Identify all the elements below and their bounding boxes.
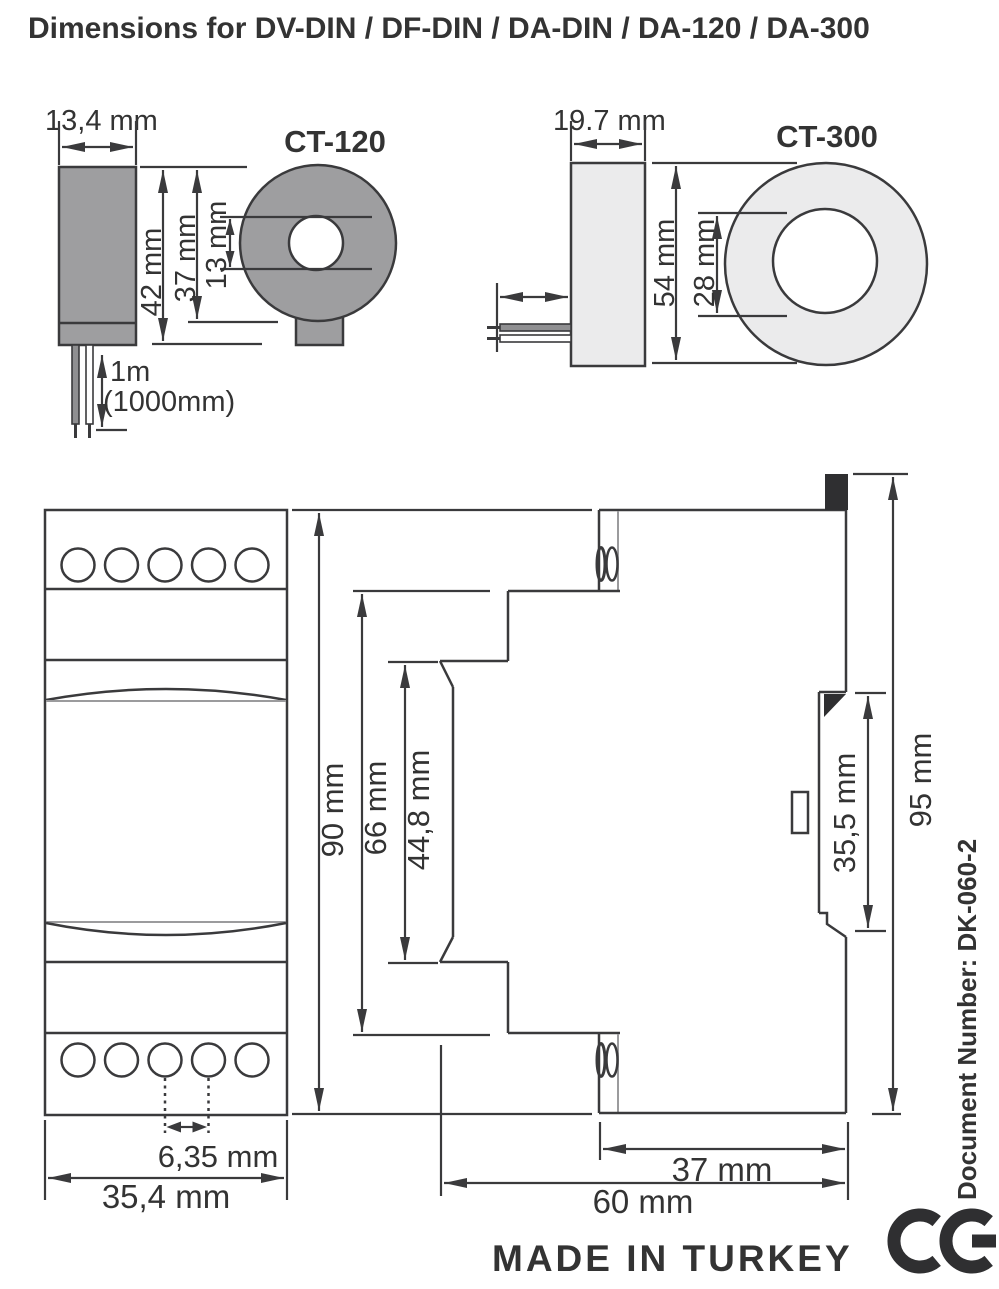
ce-letter-c	[894, 1215, 937, 1267]
rail-slot-label: 35,5 mm	[827, 753, 862, 874]
ct120-side-body	[59, 167, 136, 345]
ct120-wires	[72, 345, 93, 438]
terminal-pitch-label: 6,35 mm	[158, 1139, 279, 1174]
ct300-title: CT-300	[776, 119, 878, 154]
ct120-cable-label: 1m	[110, 356, 150, 388]
ce-mark-icon	[894, 1215, 996, 1267]
wire	[500, 335, 571, 342]
overall-depth-label: 60 mm	[593, 1183, 694, 1220]
ct300-hole-label: 28 mm	[689, 219, 721, 308]
wire	[72, 345, 79, 424]
ct300-drawing: 19.7 mm CT-300	[487, 105, 927, 366]
made-in-label: MADE IN TURKEY	[492, 1238, 853, 1280]
ct120-cable-label-alt: (1000mm)	[103, 386, 235, 418]
ct300-outer-label: 54 mm	[649, 219, 681, 308]
ct120-hole	[289, 216, 343, 270]
document-number: Document Number: DK-060-2	[952, 839, 983, 1200]
technical-drawing-canvas: 13,4 mm 1m (1000mm) CT-120	[0, 0, 999, 1289]
ct120-width-label: 13,4 mm	[45, 105, 158, 137]
din-clip-tab	[825, 474, 848, 510]
arrowhead	[167, 1122, 182, 1133]
ct300-hole	[773, 209, 877, 313]
terminal-screw-side	[607, 548, 618, 581]
side-window-height-label: 44,8 mm	[401, 750, 436, 871]
ct120-hole-label: 13 mm	[201, 201, 233, 290]
terminal-screw-side	[597, 548, 605, 581]
ct120-body-label: 37 mm	[170, 214, 202, 303]
ct300-wires	[487, 324, 571, 342]
terminal-screw-side	[597, 1044, 605, 1077]
terminal-screw-side	[607, 1044, 618, 1077]
dimensions-drawing-page: Dimensions for DV-DIN / DF-DIN / DA-DIN …	[0, 0, 999, 1289]
overall-height-label: 95 mm	[903, 733, 938, 828]
module-side-view: 66 mm 44,8 mm 35,5 mm 95 mm 37 mm	[353, 474, 938, 1220]
module-front-view: 6,35 mm 35,4 mm 90 mm	[45, 510, 592, 1215]
rail-hook-top	[824, 694, 846, 717]
side-profile	[440, 474, 848, 1113]
terminal-pitch-arrow	[167, 1122, 208, 1133]
ct120-drawing: 13,4 mm 1m (1000mm) CT-120	[45, 105, 396, 438]
arrowhead	[193, 1122, 208, 1133]
wire	[86, 345, 93, 424]
page-title: Dimensions for DV-DIN / DF-DIN / DA-DIN …	[28, 12, 870, 46]
chamfer	[440, 661, 453, 687]
front-width-label: 35,4 mm	[102, 1178, 230, 1215]
chamfer	[440, 937, 453, 962]
wire	[500, 324, 571, 331]
module-front-outline	[45, 510, 287, 1115]
side-front-height-label: 66 mm	[358, 761, 393, 856]
ct120-outer-label: 42 mm	[136, 228, 168, 317]
front-height-label: 90 mm	[315, 763, 350, 858]
ct300-side-body	[571, 163, 645, 366]
rail-hook-bottom	[819, 913, 846, 937]
din-clip-slider	[792, 792, 808, 833]
ct120-title: CT-120	[284, 124, 386, 159]
